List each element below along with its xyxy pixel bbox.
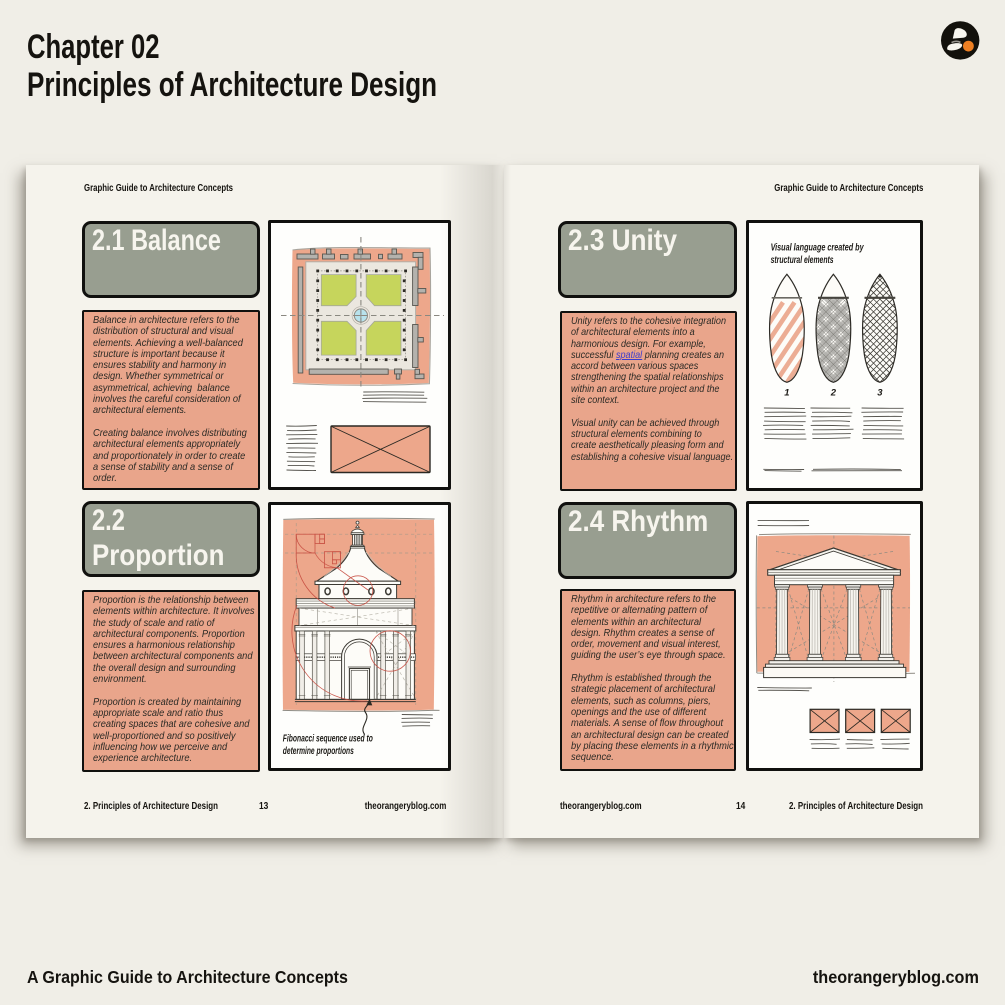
svg-text:Visual language created by: Visual language created by — [771, 243, 864, 254]
svg-text:determine proportions: determine proportions — [283, 746, 354, 757]
svg-text:structural elements: structural elements — [771, 255, 834, 266]
svg-text:2: 2 — [830, 388, 837, 399]
svg-text:Fibonacci sequence used to: Fibonacci sequence used to — [283, 734, 373, 745]
svg-text:3: 3 — [877, 388, 883, 399]
svg-text:1: 1 — [784, 388, 789, 399]
